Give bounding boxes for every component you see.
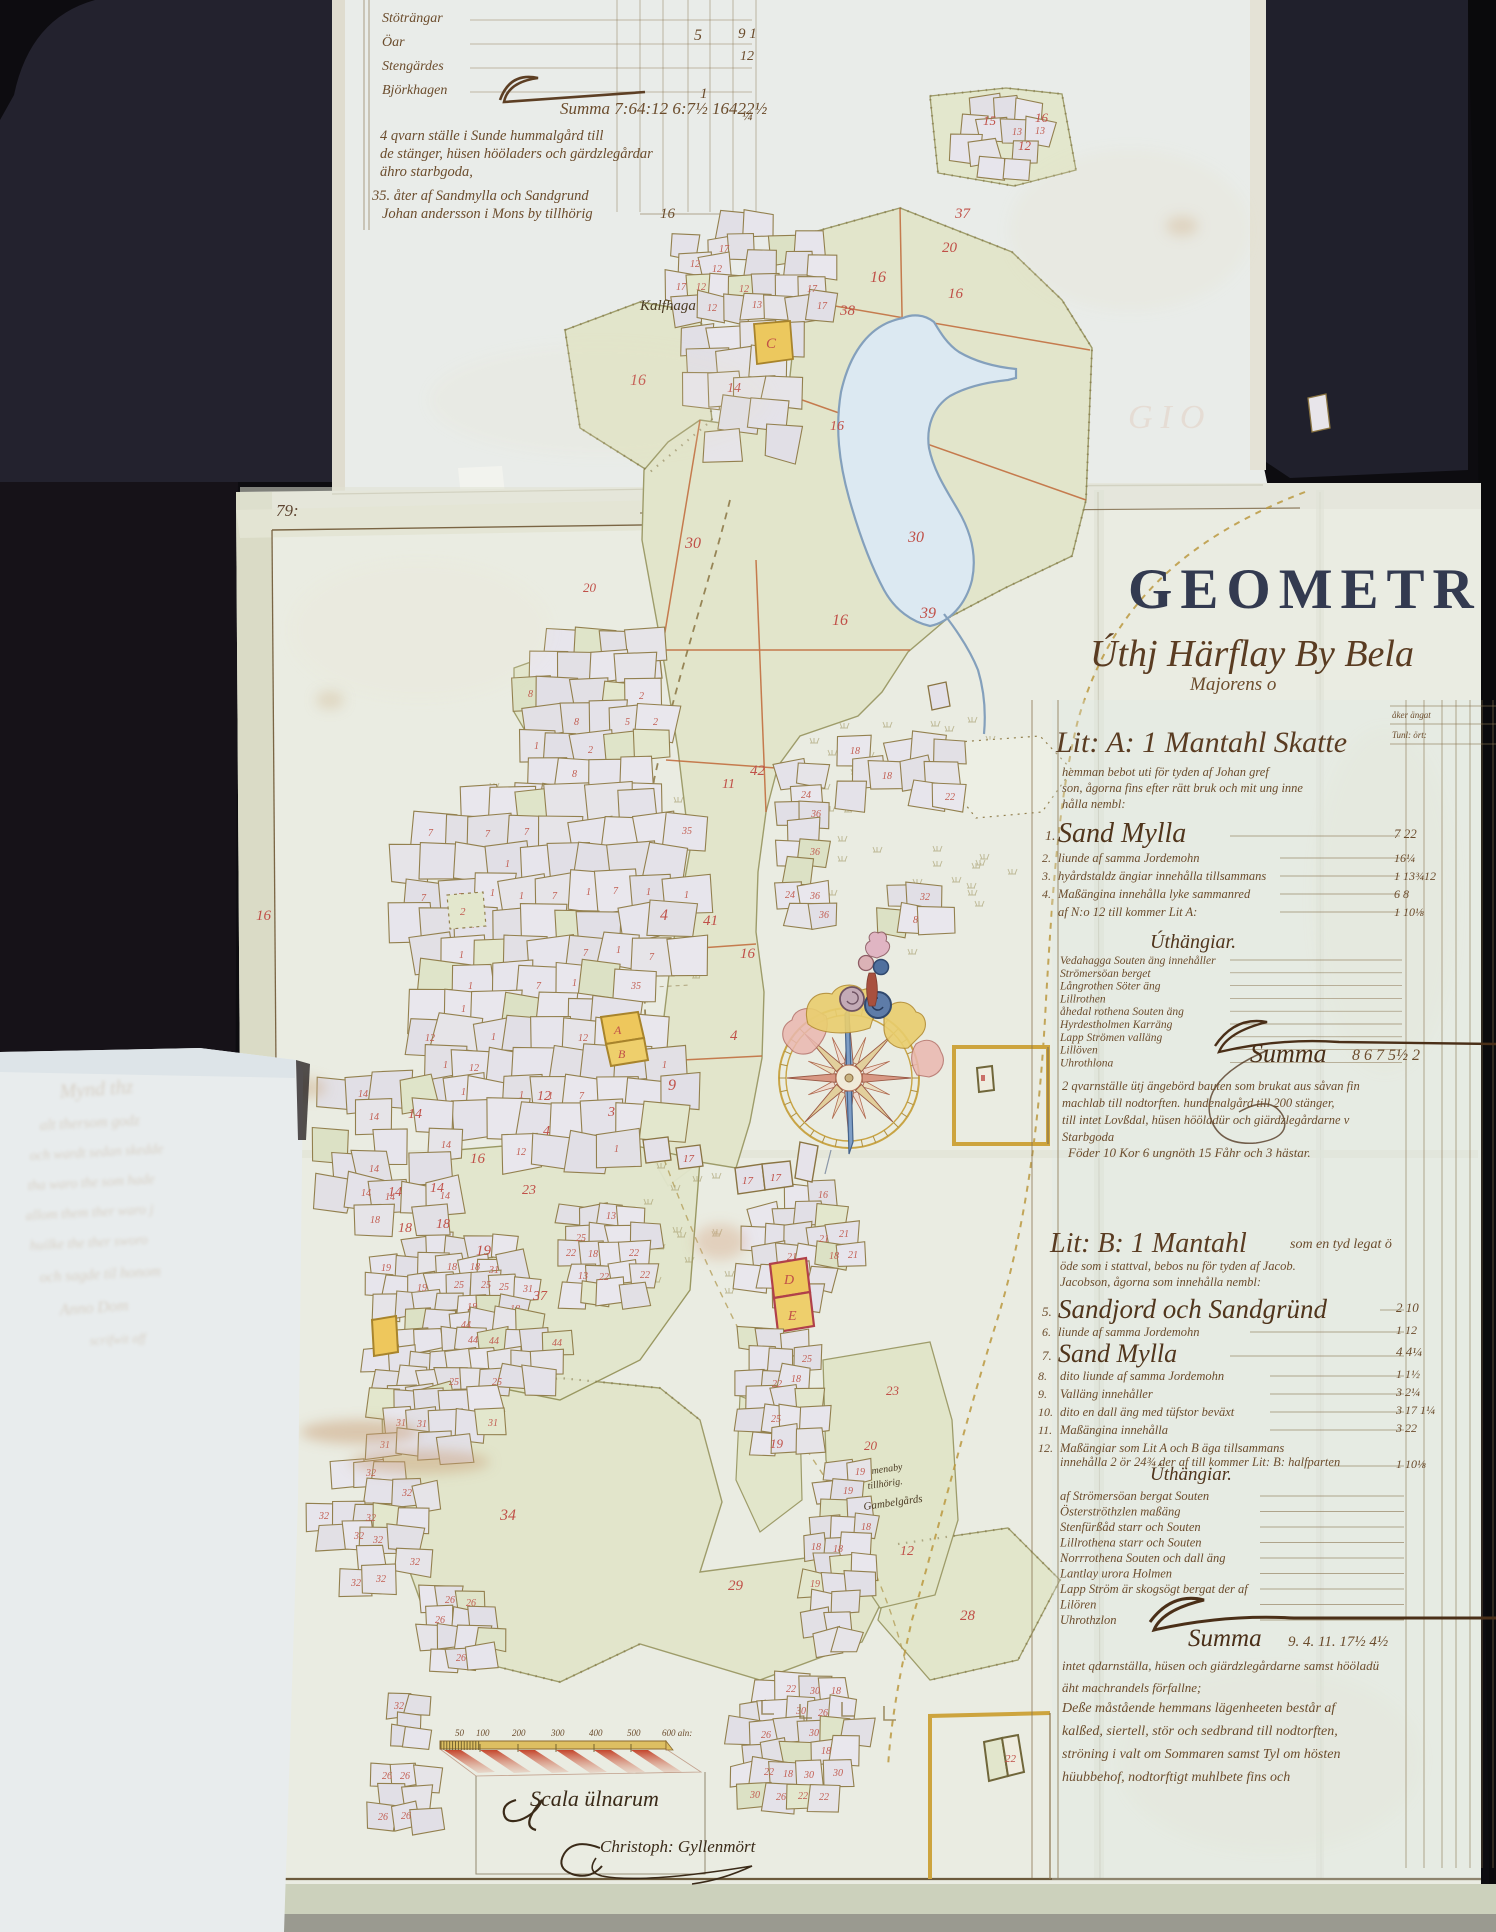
svg-text:17: 17: [683, 1153, 695, 1165]
svg-text:14: 14: [361, 1188, 371, 1199]
svg-text:37: 37: [954, 206, 972, 222]
svg-text:22: 22: [599, 1272, 609, 1283]
svg-text:26: 26: [435, 1615, 445, 1626]
svg-text:1: 1: [534, 741, 539, 752]
svg-text:9.: 9.: [1038, 1387, 1047, 1401]
svg-text:31: 31: [416, 1419, 427, 1430]
svg-text:16: 16: [256, 908, 272, 924]
svg-text:12: 12: [537, 1089, 551, 1104]
svg-text:till intet Lovßdal, hüsen hööl: till intet Lovßdal, hüsen hööladür och g…: [1062, 1113, 1350, 1127]
svg-text:20: 20: [864, 1438, 878, 1453]
svg-text:1: 1: [646, 887, 651, 898]
svg-text:Valläng innehåller: Valläng innehåller: [1060, 1387, 1153, 1401]
svg-text:hyårdstaldz ängiar innehålla t: hyårdstaldz ängiar innehålla tillsammans: [1058, 869, 1266, 883]
svg-text:1: 1: [684, 890, 689, 901]
svg-text:intet qdarnställa, hüsen och g: intet qdarnställa, hüsen och giärdzlegår…: [1062, 1658, 1380, 1673]
svg-text:Sand Mylla: Sand Mylla: [1058, 1339, 1177, 1368]
svg-text:12: 12: [712, 264, 722, 275]
svg-text:18: 18: [833, 1544, 843, 1555]
svg-text:Österströthzlen maßäng: Österströthzlen maßäng: [1060, 1504, 1181, 1519]
svg-text:14: 14: [358, 1089, 368, 1100]
svg-text:16: 16: [832, 612, 848, 629]
svg-text:41: 41: [703, 913, 718, 929]
svg-text:6.: 6.: [1042, 1325, 1051, 1339]
svg-text:de stänger, hüsen hööladers oc: de stänger, hüsen hööladers och gärdzleg…: [380, 146, 653, 162]
svg-text:4.: 4.: [1042, 887, 1051, 901]
svg-text:Úthängiar.: Úthängiar.: [1150, 929, 1236, 953]
svg-text:1 13¾12: 1 13¾12: [1394, 869, 1436, 883]
svg-text:18: 18: [861, 1522, 871, 1533]
svg-text:36: 36: [818, 910, 829, 921]
svg-text:ströning i valt om Sommaren sa: ströning i valt om Sommaren samst Tyl om…: [1062, 1747, 1340, 1762]
svg-text:13: 13: [1012, 127, 1022, 138]
svg-text:1 1½: 1 1½: [1396, 1367, 1420, 1381]
svg-text:8: 8: [574, 717, 579, 728]
svg-text:Hyrdestholmen Karräng: Hyrdestholmen Karräng: [1059, 1019, 1173, 1031]
svg-text:12: 12: [578, 1033, 588, 1044]
svg-text:35. åter af Sandmylla och Sand: 35. åter af Sandmylla och Sandgrund: [371, 188, 589, 204]
svg-text:4 4¼: 4 4¼: [1396, 1344, 1422, 1359]
svg-text:1 10⅛: 1 10⅛: [1396, 1457, 1426, 1471]
svg-text:19: 19: [770, 1436, 784, 1451]
svg-text:2 qvarnställe ütj ängebörd bau: 2 qvarnställe ütj ängebörd bauten som br…: [1062, 1079, 1360, 1093]
svg-text:31: 31: [487, 1418, 498, 1429]
svg-text:18: 18: [791, 1374, 801, 1385]
svg-text:31: 31: [522, 1284, 533, 1295]
svg-text:11.: 11.: [1038, 1423, 1052, 1437]
svg-text:2.: 2.: [1042, 851, 1051, 865]
svg-text:30: 30: [803, 1770, 814, 1781]
svg-text:26: 26: [776, 1792, 786, 1803]
svg-text:Úthängiar.: Úthängiar.: [1150, 1463, 1232, 1485]
svg-text:32: 32: [372, 1535, 383, 1546]
svg-text:14: 14: [441, 1140, 451, 1151]
svg-text:Sandjord och Sandgründ: Sandjord och Sandgründ: [1058, 1294, 1327, 1324]
svg-text:Föder 10 Kor 6 ungnöth 15 Fåhr: Föder 10 Kor 6 ungnöth 15 Fåhr och 3 häs…: [1067, 1145, 1311, 1160]
svg-text:1.: 1.: [1045, 829, 1056, 844]
svg-text:14: 14: [369, 1164, 379, 1175]
svg-text:B: B: [618, 1047, 626, 1061]
svg-text:1: 1: [505, 859, 510, 870]
svg-text:1: 1: [616, 945, 621, 956]
svg-text:Lillrothen: Lillrothen: [1059, 993, 1106, 1005]
svg-text:3 2¼: 3 2¼: [1395, 1385, 1420, 1399]
svg-text:19: 19: [843, 1486, 853, 1497]
svg-text:8.: 8.: [1038, 1369, 1047, 1383]
svg-text:4: 4: [730, 1028, 738, 1044]
svg-text:7.: 7.: [1042, 1348, 1052, 1363]
svg-text:22: 22: [772, 1379, 782, 1390]
svg-text:300: 300: [550, 1728, 565, 1738]
svg-text:35: 35: [681, 826, 692, 837]
svg-text:8 6 7 5½ 2: 8 6 7 5½ 2: [1352, 1047, 1420, 1064]
svg-text:14: 14: [408, 1107, 422, 1122]
svg-text:1: 1: [519, 1090, 524, 1101]
svg-text:36: 36: [809, 891, 820, 902]
svg-text:13: 13: [1035, 126, 1045, 137]
svg-text:22: 22: [819, 1792, 829, 1803]
svg-text:22: 22: [786, 1684, 796, 1695]
svg-text:Lillrothena starr och Souten: Lillrothena starr och Souten: [1059, 1536, 1202, 1550]
svg-text:1: 1: [586, 887, 591, 898]
svg-text:22: 22: [629, 1248, 639, 1259]
svg-text:100: 100: [476, 1728, 490, 1738]
svg-text:26: 26: [400, 1771, 410, 1782]
svg-text:9 1: 9 1: [738, 26, 757, 42]
svg-text:14: 14: [369, 1112, 379, 1123]
svg-text:12: 12: [900, 1544, 914, 1559]
svg-text:23: 23: [886, 1383, 900, 1398]
svg-text:machlab till nodtorften. hund: machlab till nodtorften. hundenalgård ti…: [1062, 1096, 1334, 1110]
svg-text:37: 37: [532, 1289, 548, 1304]
svg-text:600 aln:: 600 aln:: [662, 1728, 692, 1738]
svg-text:42: 42: [750, 763, 766, 779]
svg-text:hüubbehof, nodtorftigt muhlbet: hüubbehof, nodtorftigt muhlbete fins och: [1062, 1770, 1290, 1785]
svg-text:öde som i stattval, bebos nu f: öde som i stattval, bebos nu för tyden a…: [1060, 1259, 1296, 1273]
svg-text:44: 44: [468, 1335, 478, 1346]
svg-text:1 12: 1 12: [1396, 1323, 1417, 1337]
svg-text:32: 32: [318, 1511, 329, 1522]
svg-text:Deße måstående hemmans lägenhe: Deße måstående hemmans lägenheeten bestå…: [1061, 1701, 1337, 1716]
svg-text:1: 1: [468, 981, 473, 992]
svg-text:8: 8: [528, 689, 533, 700]
svg-text:9. 4. 11. 17½ 4½: 9. 4. 11. 17½ 4½: [1288, 1634, 1388, 1650]
svg-text:25: 25: [576, 1233, 586, 1244]
svg-text:36: 36: [810, 809, 821, 820]
svg-text:22: 22: [798, 1791, 808, 1802]
svg-text:1: 1: [443, 1060, 448, 1071]
svg-text:22: 22: [640, 1270, 650, 1281]
svg-text:Lillöven: Lillöven: [1059, 1045, 1098, 1057]
svg-text:22: 22: [566, 1248, 576, 1259]
svg-text:200: 200: [512, 1728, 526, 1738]
svg-text:18: 18: [811, 1542, 821, 1553]
svg-text:scrifwit aff: scrifwit aff: [89, 1330, 148, 1348]
svg-text:1: 1: [459, 950, 464, 961]
svg-text:6 8: 6 8: [1394, 887, 1409, 901]
svg-text:16: 16: [470, 1151, 486, 1167]
svg-text:Uhrothzlon: Uhrothzlon: [1060, 1613, 1117, 1627]
svg-text:44: 44: [461, 1320, 471, 1331]
svg-text:25: 25: [454, 1280, 464, 1291]
svg-text:18: 18: [470, 1262, 480, 1273]
svg-text:400: 400: [589, 1728, 603, 1738]
svg-text:18: 18: [882, 771, 892, 782]
svg-text:11: 11: [722, 777, 735, 792]
svg-text:16: 16: [870, 269, 886, 286]
svg-text:4 qvarn ställe i Sunde hummalg: 4 qvarn ställe i Sunde hummalgård till: [380, 128, 603, 144]
svg-text:12: 12: [690, 259, 700, 270]
svg-text:13: 13: [606, 1211, 616, 1222]
svg-text:26: 26: [456, 1653, 466, 1664]
svg-text:19: 19: [855, 1467, 865, 1478]
svg-text:1 10⅛: 1 10⅛: [1394, 905, 1424, 919]
svg-text:12: 12: [469, 1063, 479, 1074]
svg-text:12.: 12.: [1038, 1441, 1053, 1455]
svg-text:17: 17: [676, 282, 687, 293]
svg-text:1: 1: [662, 1060, 667, 1071]
svg-text:32: 32: [375, 1574, 386, 1585]
svg-text:A: A: [613, 1023, 622, 1037]
svg-text:19: 19: [476, 1243, 492, 1259]
svg-text:Úthj Härflay By Bela: Úthj Härflay By Bela: [1090, 633, 1414, 675]
svg-text:21: 21: [839, 1229, 849, 1240]
svg-text:Uhrothlona: Uhrothlona: [1060, 1057, 1113, 1069]
svg-text:32: 32: [365, 1513, 376, 1524]
svg-text:Lit: B: 1 Mantahl: Lit: B: 1 Mantahl: [1049, 1228, 1247, 1259]
svg-text:13: 13: [752, 300, 762, 311]
svg-text:30: 30: [684, 535, 701, 552]
svg-text:18: 18: [821, 1746, 831, 1757]
svg-text:GEOMETR: GEOMETR: [1128, 558, 1482, 621]
svg-text:Lapp Strömen valläng: Lapp Strömen valläng: [1059, 1032, 1162, 1044]
svg-text:39: 39: [919, 605, 936, 622]
svg-text:3.: 3.: [1041, 869, 1051, 883]
svg-text:26: 26: [401, 1811, 411, 1822]
svg-text:Scala ülnarum: Scala ülnarum: [530, 1786, 659, 1811]
svg-text:4: 4: [543, 1124, 550, 1139]
svg-text:2: 2: [639, 691, 644, 702]
svg-text:dito en dall äng med tüfstor b: dito en dall äng med tüfstor beväxt: [1060, 1405, 1235, 1419]
svg-text:14: 14: [388, 1185, 402, 1200]
svg-text:17: 17: [742, 1175, 754, 1187]
svg-text:25: 25: [449, 1377, 459, 1388]
svg-text:18: 18: [588, 1249, 598, 1260]
svg-text:30: 30: [749, 1790, 760, 1801]
svg-text:24: 24: [801, 790, 811, 801]
svg-text:30: 30: [907, 529, 924, 546]
svg-text:1: 1: [491, 1032, 496, 1043]
svg-text:32: 32: [393, 1701, 404, 1712]
svg-text:af Strömersöan bergat Souten: af Strömersöan bergat Souten: [1060, 1489, 1209, 1503]
svg-text:hemman bebot uti för tyden af: hemman bebot uti för tyden af Johan gref: [1062, 765, 1270, 779]
svg-text:30: 30: [832, 1768, 843, 1779]
svg-text:19: 19: [810, 1579, 820, 1590]
svg-text:20: 20: [583, 580, 597, 595]
svg-text:21: 21: [848, 1250, 858, 1261]
svg-text:son, ågorna fins efter rätt br: son, ågorna fins efter rätt bruk och mit…: [1062, 781, 1303, 795]
svg-text:22: 22: [1005, 1753, 1017, 1765]
svg-text:16: 16: [830, 419, 844, 434]
svg-text:25: 25: [802, 1354, 812, 1365]
svg-text:17: 17: [719, 244, 730, 255]
svg-text:30: 30: [808, 1728, 819, 1739]
svg-text:af N:o 12 till kommer Lit A:: af N:o 12 till kommer Lit A:: [1058, 905, 1197, 919]
svg-text:Sand Mylla: Sand Mylla: [1058, 818, 1186, 849]
svg-text:26: 26: [382, 1771, 392, 1782]
svg-text:19: 19: [381, 1263, 391, 1274]
svg-text:kalßed, siertell, stör och sed: kalßed, siertell, stör och sedbrand till…: [1062, 1724, 1338, 1739]
svg-text:12: 12: [425, 1033, 435, 1044]
svg-text:16: 16: [1035, 110, 1049, 125]
svg-text:18: 18: [831, 1686, 841, 1697]
svg-text:12: 12: [740, 49, 754, 64]
svg-text:500: 500: [627, 1728, 641, 1738]
svg-text:2 10: 2 10: [1396, 1300, 1419, 1315]
svg-text:5: 5: [625, 717, 630, 728]
svg-text:1: 1: [519, 891, 524, 902]
svg-text:38: 38: [839, 303, 856, 319]
svg-text:28: 28: [960, 1608, 976, 1624]
svg-text:3 17 1¼: 3 17 1¼: [1395, 1403, 1435, 1417]
svg-text:1: 1: [614, 1144, 619, 1155]
svg-text:2: 2: [460, 906, 466, 918]
svg-text:25: 25: [771, 1414, 781, 1425]
svg-text:2: 2: [653, 717, 658, 728]
svg-text:18: 18: [398, 1221, 412, 1236]
svg-text:13: 13: [578, 1271, 588, 1282]
svg-text:79:: 79:: [276, 501, 299, 520]
svg-text:hålla nembl:: hålla nembl:: [1062, 797, 1126, 811]
svg-text:26: 26: [761, 1730, 771, 1741]
svg-text:19: 19: [417, 1283, 427, 1294]
svg-text:Norrrothena Souten och dall än: Norrrothena Souten och dall äng: [1059, 1551, 1226, 1565]
svg-text:Maßängiar som Lit A och B äga: Maßängiar som Lit A och B äga tillsamman…: [1059, 1441, 1284, 1455]
svg-text:1: 1: [461, 1004, 466, 1015]
svg-text:C: C: [766, 336, 777, 352]
svg-text:12: 12: [516, 1147, 526, 1158]
svg-text:Majorens o: Majorens o: [1189, 674, 1276, 695]
svg-text:D: D: [783, 1273, 794, 1288]
svg-text:Lilören: Lilören: [1059, 1598, 1096, 1612]
svg-text:18: 18: [829, 1251, 839, 1262]
svg-text:Maßängina innehålla: Maßängina innehålla: [1059, 1423, 1168, 1437]
svg-text:36: 36: [809, 847, 820, 858]
svg-text:16¼: 16¼: [1394, 851, 1415, 865]
svg-text:8: 8: [913, 915, 918, 926]
svg-text:Jacobson, ågorna som innehålla: Jacobson, ågorna som innehålla nembl:: [1060, 1275, 1261, 1289]
svg-text:åhedal rothena Souten äng: åhedal rothena Souten äng: [1060, 1005, 1184, 1018]
svg-text:GIO: GIO: [1128, 399, 1212, 436]
svg-text:32: 32: [353, 1531, 364, 1542]
svg-text:3: 3: [607, 1105, 615, 1120]
svg-text:18: 18: [370, 1215, 380, 1226]
svg-text:10.: 10.: [1038, 1405, 1053, 1419]
svg-text:Vedahagga Souten äng innehålle: Vedahagga Souten äng innehåller: [1060, 954, 1216, 967]
svg-text:12: 12: [1018, 138, 1032, 153]
svg-text:Starbgoda: Starbgoda: [1062, 1130, 1114, 1144]
svg-text:16: 16: [740, 946, 756, 962]
svg-text:5.: 5.: [1042, 1304, 1052, 1319]
svg-text:18: 18: [850, 746, 860, 757]
svg-text:E: E: [787, 1309, 797, 1324]
svg-text:Lantlay urora Holmen: Lantlay urora Holmen: [1059, 1567, 1172, 1581]
svg-text:31: 31: [488, 1265, 499, 1276]
svg-text:32: 32: [409, 1557, 420, 1568]
svg-text:Summa 7:64:12 6:7½ 16422½: Summa 7:64:12 6:7½ 16422½: [560, 99, 768, 118]
svg-text:Kalfhaga: Kalfhaga: [639, 298, 696, 314]
svg-text:Stengärdes: Stengärdes: [382, 59, 444, 74]
svg-text:2: 2: [588, 745, 593, 756]
svg-text:Långrothen Söter äng: Långrothen Söter äng: [1059, 980, 1161, 993]
svg-text:ähro starbgoda,: ähro starbgoda,: [380, 164, 473, 180]
svg-text:25: 25: [481, 1280, 491, 1291]
svg-text:29: 29: [728, 1578, 744, 1594]
svg-text:12: 12: [707, 303, 717, 314]
svg-text:Strömersöan berget: Strömersöan berget: [1060, 968, 1151, 980]
svg-text:26: 26: [378, 1812, 388, 1823]
svg-text:32: 32: [350, 1578, 361, 1589]
svg-text:16: 16: [948, 286, 964, 302]
svg-text:25: 25: [499, 1282, 509, 1293]
svg-text:18: 18: [783, 1769, 793, 1780]
svg-text:Tunl: ört:: Tunl: ört:: [1392, 730, 1427, 740]
svg-text:17: 17: [807, 284, 818, 295]
svg-text:32: 32: [401, 1488, 412, 1499]
svg-text:3 22: 3 22: [1395, 1421, 1417, 1435]
svg-text:1: 1: [490, 888, 495, 899]
svg-text:44: 44: [552, 1338, 562, 1349]
svg-text:Björkhagen: Björkhagen: [382, 83, 447, 98]
svg-text:26: 26: [818, 1708, 828, 1719]
svg-text:8: 8: [572, 769, 577, 780]
svg-text:21: 21: [819, 1234, 829, 1245]
svg-text:22: 22: [945, 792, 955, 803]
svg-text:12: 12: [739, 284, 749, 295]
svg-text:4: 4: [660, 907, 668, 924]
svg-text:7 22: 7 22: [1394, 826, 1417, 841]
svg-text:12: 12: [696, 282, 706, 293]
svg-text:26: 26: [445, 1595, 455, 1606]
svg-text:Öar: Öar: [382, 33, 405, 50]
svg-text:9: 9: [668, 1077, 676, 1094]
svg-text:liunde af samma Jordemohn: liunde af samma Jordemohn: [1058, 1325, 1200, 1339]
svg-text:17: 17: [817, 301, 828, 312]
svg-text:åker ängat: åker ängat: [1392, 710, 1431, 720]
svg-text:26: 26: [466, 1598, 476, 1609]
svg-text:23: 23: [522, 1183, 536, 1198]
svg-text:17: 17: [770, 1172, 782, 1184]
svg-text:1: 1: [572, 978, 577, 989]
svg-text:Christoph: Gyllenmört: Christoph: Gyllenmört: [600, 1837, 757, 1856]
svg-text:20: 20: [942, 240, 958, 256]
svg-text:Lapp Ström är skogsögt bergat: Lapp Ström är skogsögt bergat der af: [1059, 1582, 1249, 1596]
svg-text:1: 1: [461, 1087, 466, 1098]
svg-text:14: 14: [430, 1181, 444, 1196]
svg-text:Lit: A: 1 Mantahl Skatte: Lit: A: 1 Mantahl Skatte: [1055, 726, 1347, 759]
svg-text:16: 16: [818, 1190, 828, 1201]
svg-text:35: 35: [630, 981, 641, 992]
svg-text:dito liunde af samma Jordemohn: dito liunde af samma Jordemohn: [1060, 1369, 1224, 1383]
svg-text:5: 5: [694, 27, 702, 44]
svg-text:Maßängina innehålla lyke samma: Maßängina innehålla lyke sammanred: [1057, 887, 1251, 901]
svg-text:18: 18: [447, 1262, 457, 1273]
svg-text:34: 34: [499, 1507, 516, 1524]
svg-text:äht machrandels förfallne;: äht machrandels förfallne;: [1062, 1680, 1201, 1695]
svg-text:30: 30: [809, 1686, 820, 1697]
svg-text:22: 22: [764, 1767, 774, 1778]
svg-text:Johan andersson i Mons by till: Johan andersson i Mons by tillhörig: [382, 206, 593, 222]
svg-text:liunde af samma Jordemohn: liunde af samma Jordemohn: [1058, 851, 1200, 865]
svg-text:Stöträngar: Stöträngar: [382, 11, 443, 26]
svg-text:Summa: Summa: [1188, 1625, 1262, 1652]
svg-text:50: 50: [455, 1728, 465, 1738]
svg-text:15: 15: [983, 113, 997, 128]
svg-text:som en tyd legat ö: som en tyd legat ö: [1290, 1237, 1392, 1252]
svg-text:Stenfürßåd starr och Souten: Stenfürßåd starr och Souten: [1060, 1520, 1201, 1534]
svg-text:44: 44: [489, 1336, 499, 1347]
svg-text:24: 24: [785, 890, 795, 901]
svg-text:Summa: Summa: [1250, 1039, 1327, 1068]
svg-text:18: 18: [436, 1217, 450, 1232]
svg-text:32: 32: [919, 892, 930, 903]
